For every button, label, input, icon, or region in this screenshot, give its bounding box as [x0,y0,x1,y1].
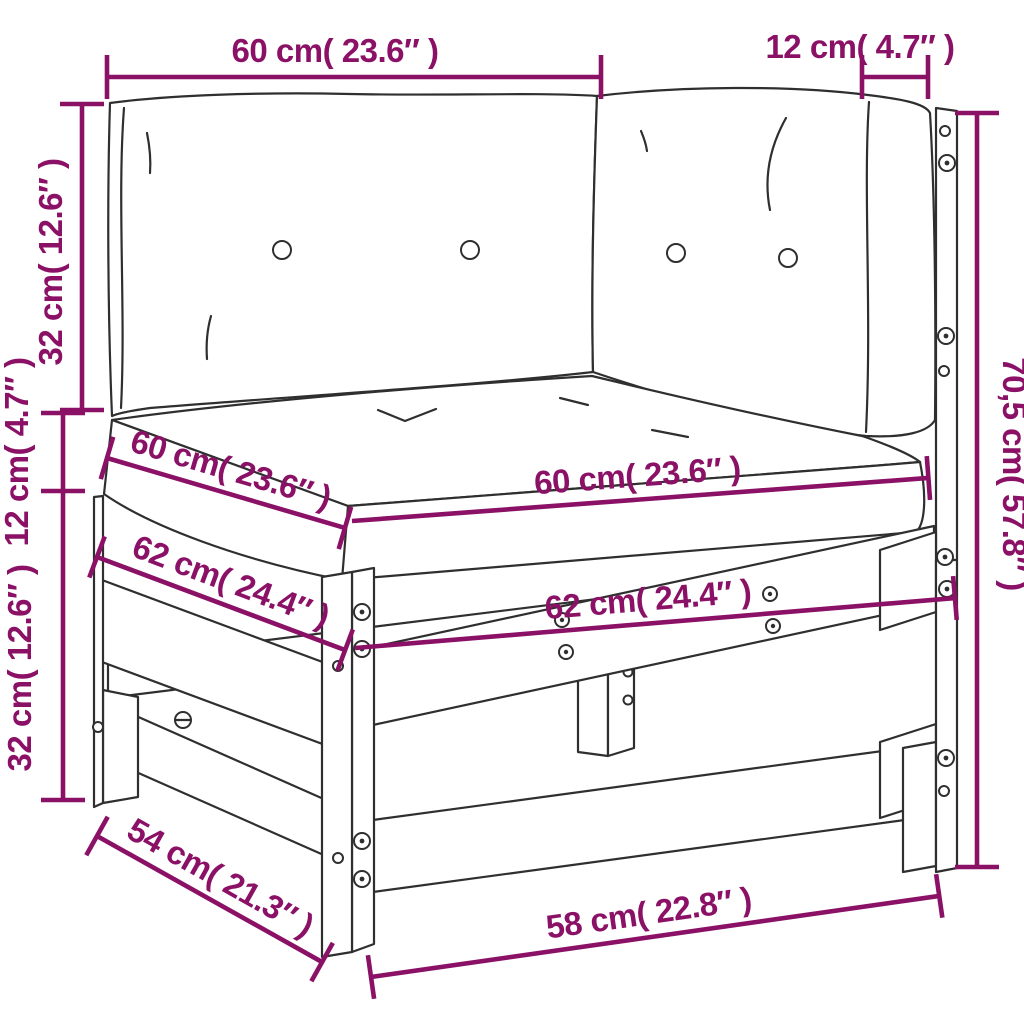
dimension-diagram: 60 cm( 23.6″ ) 12 cm( 4.7″ ) 32 cm( 12.6… [0,0,1024,1024]
right-upper-rail [880,532,936,630]
diagram-svg: 60 cm( 23.6″ ) 12 cm( 4.7″ ) 32 cm( 12.6… [0,0,1024,1024]
dim-total-height: 70,5 cm( 57.8″ ) [955,113,1024,867]
back-cushion-right [592,88,935,436]
dim-back-width: 60 cm( 23.6″ ) [107,32,601,99]
tuft-button [779,249,797,267]
dim-side-width-label: 12 cm( 4.7″ ) [765,28,954,65]
dim-back-cushion-height-label: 32 cm( 12.6″ ) [32,159,69,366]
dim-seat-cushion-thickness-label: 12 cm( 4.7″ ) [0,357,35,546]
sofa-drawing [93,88,957,957]
front-left-leg [322,568,374,957]
tuft-button [273,241,291,259]
dim-total-height-label: 70,5 cm( 57.8″ ) [996,357,1024,590]
dim-back-width-label: 60 cm( 23.6″ ) [232,32,439,69]
dim-frame-height-label: 32 cm( 12.6″ ) [1,565,38,772]
dim-back-cushion-height: 32 cm( 12.6″ ) [32,104,104,410]
tuft-button [667,244,685,262]
back-cushion-left [108,93,597,416]
front-lower-rail [373,744,934,892]
tuft-button [461,241,479,259]
dim-seat-cushion-thickness: 12 cm( 4.7″ ) [0,357,85,546]
